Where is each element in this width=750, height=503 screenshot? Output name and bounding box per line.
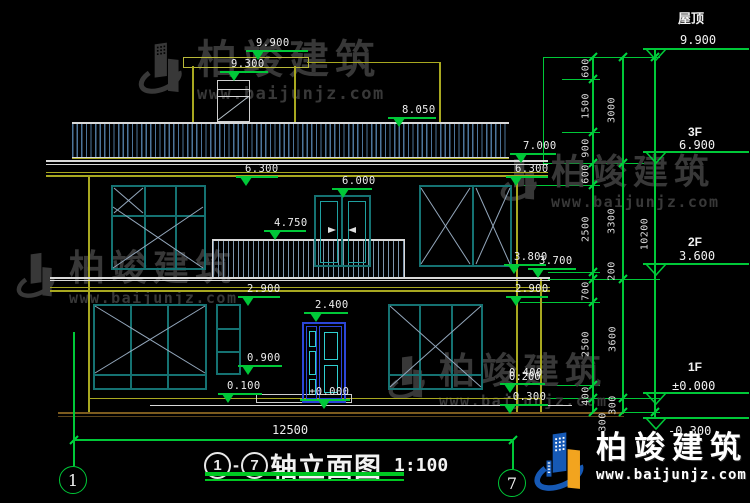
axis-bubble-1: 1 [59,466,87,494]
axis-bubble-7: 7 [498,469,526,497]
level-triangle-icon [644,392,668,405]
level-triangle-icon [644,417,668,430]
dim-label: 600 [581,164,592,184]
level-triangle-icon [644,263,668,276]
dim-label: 3600 [608,326,619,352]
axis-line-1 [73,332,75,466]
dim-chain-inner [592,57,594,412]
level-text: 6.300 [515,163,549,175]
dim-label: 900 [581,138,592,158]
level-text: 9.900 [256,37,290,49]
level-text: 9.300 [231,58,265,70]
dim-chain-total [654,48,656,417]
brand-name: 柏竣建筑 [596,432,748,463]
level-triangle-icon [644,151,668,164]
axis-number: 7 [507,474,517,493]
overall-dim-line [74,439,513,441]
dim-chain-middle [622,57,624,412]
dim-label-total: 10200 [640,218,651,251]
dim-label: 200 [607,261,618,281]
title-underline-thick [205,472,404,476]
dim-label: 600 [581,58,592,78]
title-underline-thin [205,479,404,481]
level-text: 6.000 [342,175,376,187]
brand-url: www.baijunjz.com [596,467,748,483]
level-text: 3.700 [539,255,573,267]
level-text: 4.750 [274,217,308,229]
overall-dim-text: 12500 [272,423,308,437]
level-text: 2.900 [247,283,281,295]
dim-label: 300 [608,395,619,415]
dim-label: 2500 [581,331,592,357]
level-text: ±0.000 [309,386,349,398]
level-text: 0.100 [227,380,261,392]
storey-label: 2F [688,235,702,249]
brand-logo-icon [534,432,590,494]
level-text: 7.000 [523,140,557,152]
level-text: 8.050 [402,104,436,116]
axis-number: 1 [68,471,78,490]
storey-label: 1F [688,360,702,374]
dim-label: 300 [598,412,609,432]
storey-label: 屋顶 [678,8,704,27]
dim-label: 3300 [607,208,618,234]
brand-logo: 柏竣建筑 www.baijunjz.com [534,432,748,494]
level-text: 2.400 [315,299,349,311]
linework-overlay [0,0,750,503]
dim-label: 700 [581,281,592,301]
level-text-0200: 0.200 [509,371,541,383]
dim-label: 400 [581,386,592,406]
level-text: 0.900 [247,352,281,364]
cad-elevation-canvas: 柏竣建筑 www.baijunjz.com 柏竣建筑 www.baijunjz.… [0,0,750,503]
storey-value: 3.600 [679,249,715,263]
level-text: 2.900 [515,283,549,295]
axis-line-7 [512,441,514,469]
dim-label: 3000 [607,97,618,123]
storey-label: 3F [688,125,702,139]
storey-value: 9.900 [680,33,716,47]
dim-label: 2500 [581,216,592,242]
level-text: -0.300 [506,391,546,403]
level-triangle-icon [644,48,668,61]
storey-value: 6.900 [679,138,715,152]
storey-value: ±0.000 [672,379,715,393]
level-text: 6.300 [245,163,279,175]
dim-label: 1500 [581,93,592,119]
